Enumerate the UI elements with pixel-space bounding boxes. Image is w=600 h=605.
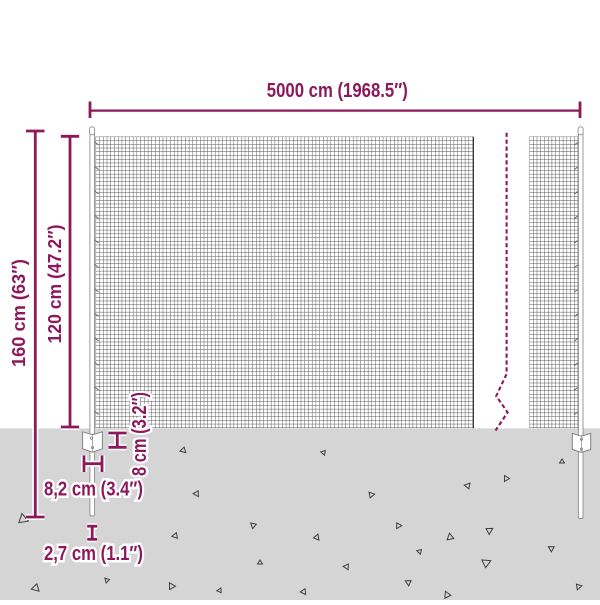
- svg-text:120 cm (47.2″): 120 cm (47.2″): [44, 225, 65, 344]
- svg-text:8 cm (3.2″): 8 cm (3.2″): [128, 392, 151, 476]
- svg-text:8,2 cm (3.4″): 8,2 cm (3.4″): [44, 478, 143, 501]
- svg-text:5000 cm (1968.5″): 5000 cm (1968.5″): [267, 80, 408, 102]
- svg-text:160 cm (63″): 160 cm (63″): [8, 259, 29, 367]
- svg-text:2,7 cm (1.1″): 2,7 cm (1.1″): [44, 542, 143, 565]
